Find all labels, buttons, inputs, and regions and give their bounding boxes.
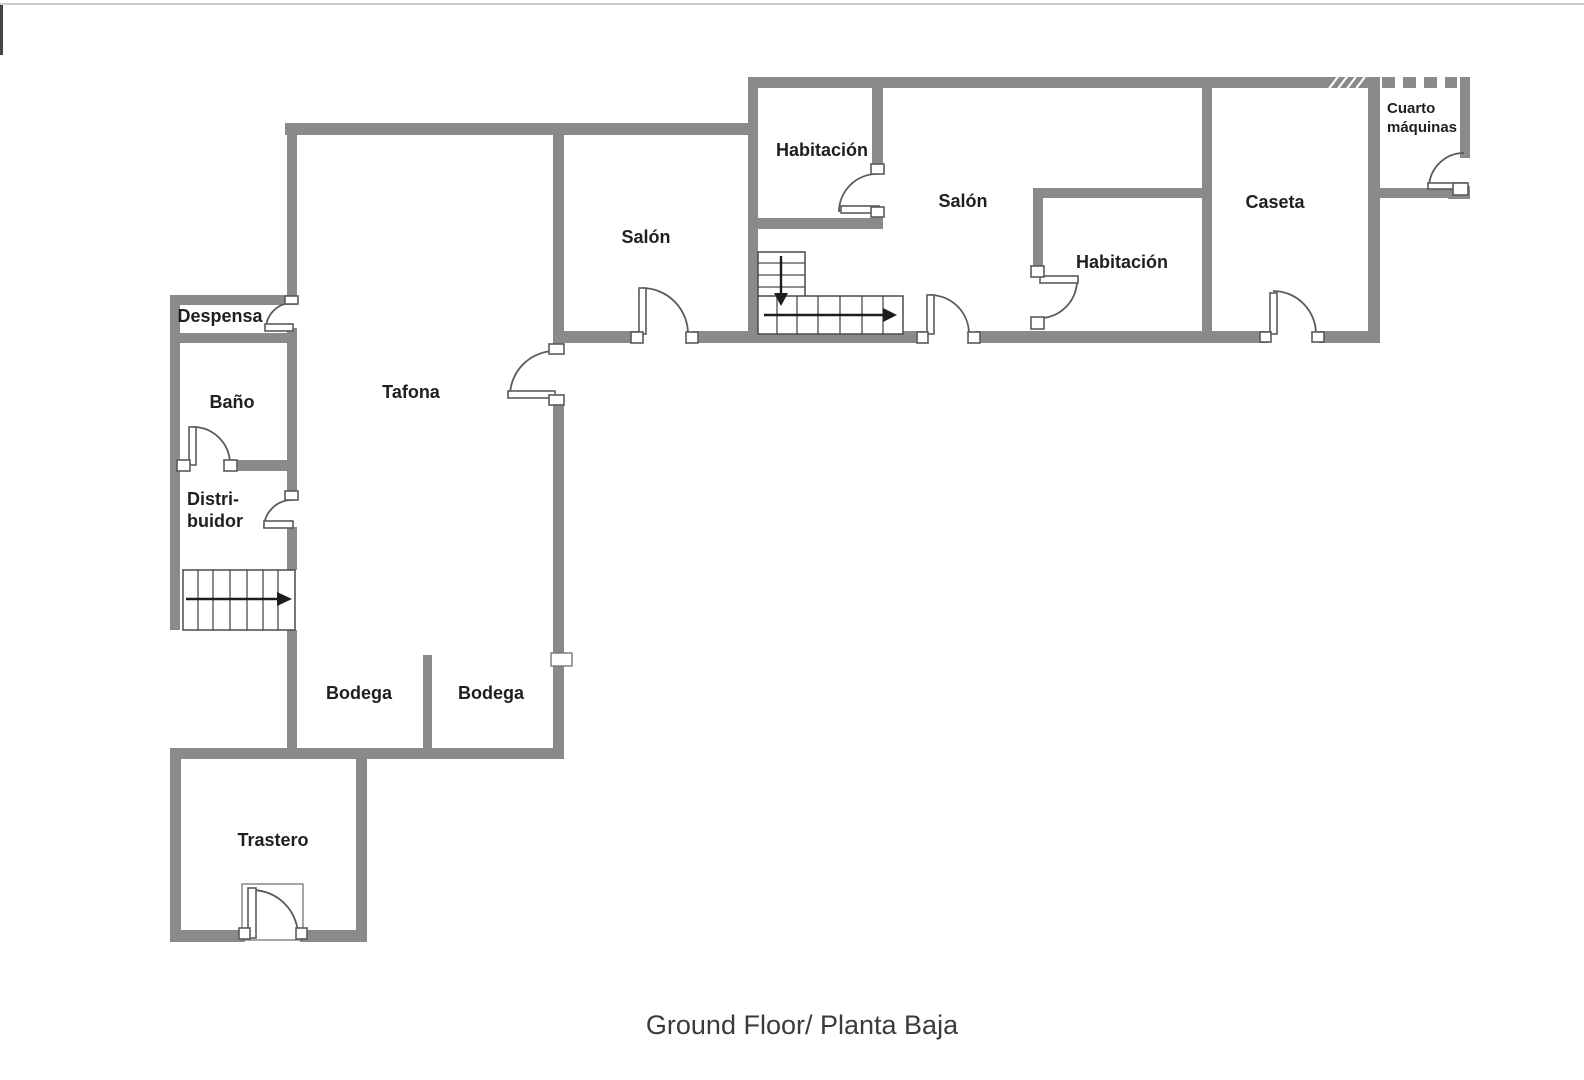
door-caseta (1260, 291, 1324, 342)
wall-annex-right-lower (287, 527, 297, 570)
floor-plan-drawing: Despensa Baño Distri- buidor Tafona Bode… (0, 0, 1584, 1080)
wall-habitacion-top-right-upper (872, 88, 883, 170)
door-salon-left (631, 288, 698, 343)
wall-habitacion-right-left (1033, 188, 1043, 275)
room-label-distribuidor-line2: buidor (187, 511, 243, 531)
wall-notch (551, 653, 572, 666)
room-label-bodega-left: Bodega (326, 683, 393, 703)
door-distribuidor (264, 491, 298, 528)
wall-annex-right-upper (287, 123, 297, 305)
wall-bodega-divider (423, 655, 432, 753)
wall-tafona-right-middle (553, 398, 564, 655)
top-edge-line (0, 3, 1584, 5)
wall-annex-right-middle (287, 328, 297, 498)
door-bano (177, 427, 237, 471)
room-label-bano: Baño (210, 392, 255, 412)
wall-top-dash-4 (1445, 77, 1457, 88)
wall-caseta-right (1368, 77, 1380, 343)
wall-top-dash-3 (1424, 77, 1437, 88)
wall-trastero-bottom-right (300, 930, 367, 942)
wall-bano-top (170, 333, 297, 343)
wall-despensa-top (170, 295, 297, 305)
wall-right-building-left (748, 77, 758, 343)
door-habitacion-top (839, 164, 884, 217)
door-tafona (508, 344, 564, 405)
wall-south-seg1 (553, 331, 640, 343)
wall-trastero-right (356, 748, 367, 941)
wall-bodega-left (287, 630, 297, 757)
floor-plan-page: Despensa Baño Distri- buidor Tafona Bode… (0, 0, 1584, 1080)
door-corridor (917, 295, 980, 343)
corridor-stairs (758, 252, 903, 334)
wall-cuarto-maquinas-right (1460, 77, 1470, 158)
room-labels: Despensa Baño Distri- buidor Tafona Bode… (177, 100, 1457, 850)
wall-right-building-top (748, 77, 1378, 88)
wall-bano-bottom-right (230, 460, 297, 471)
room-label-bodega-right: Bodega (458, 683, 525, 703)
distribuidor-stairs (183, 570, 295, 630)
floor-caption: Ground Floor/ Planta Baja (646, 1010, 959, 1040)
room-label-caseta: Caseta (1245, 192, 1305, 212)
room-label-distribuidor-line1: Distri- (187, 489, 239, 509)
room-label-salon-right: Salón (938, 191, 987, 211)
wall-habitacion-top-bottom (748, 218, 883, 229)
wall-left-building-top (285, 123, 758, 135)
door-cuarto-maquinas (1428, 153, 1468, 195)
wall-trastero-bottom-left (170, 930, 245, 942)
wall-habitacion-right-top (1033, 188, 1212, 198)
room-label-despensa: Despensa (177, 306, 263, 326)
wall-top-dash-2 (1403, 77, 1416, 88)
door-trastero (239, 884, 307, 940)
door-habitacion-right (1031, 266, 1078, 329)
room-label-habitacion-right: Habitación (1076, 252, 1168, 272)
wall-trastero-left (170, 748, 181, 941)
wall-caseta-left (1202, 88, 1212, 342)
wall-south-seg3 (975, 331, 1268, 343)
wall-tafona-right-lower (553, 666, 564, 758)
screen-edge-artifacts (0, 3, 1584, 55)
room-label-cuarto-maquinas-line1: Cuarto (1387, 100, 1435, 117)
room-label-cuarto-maquinas-line2: máquinas (1387, 119, 1457, 136)
left-edge-mark (0, 5, 3, 55)
room-label-habitacion-top: Habitación (776, 140, 868, 160)
wall-tafona-right-upper (553, 123, 564, 352)
wall-top-dash-1 (1382, 77, 1395, 88)
room-label-trastero: Trastero (237, 830, 308, 850)
room-label-salon-left: Salón (621, 227, 670, 247)
room-label-tafona: Tafona (382, 382, 441, 402)
